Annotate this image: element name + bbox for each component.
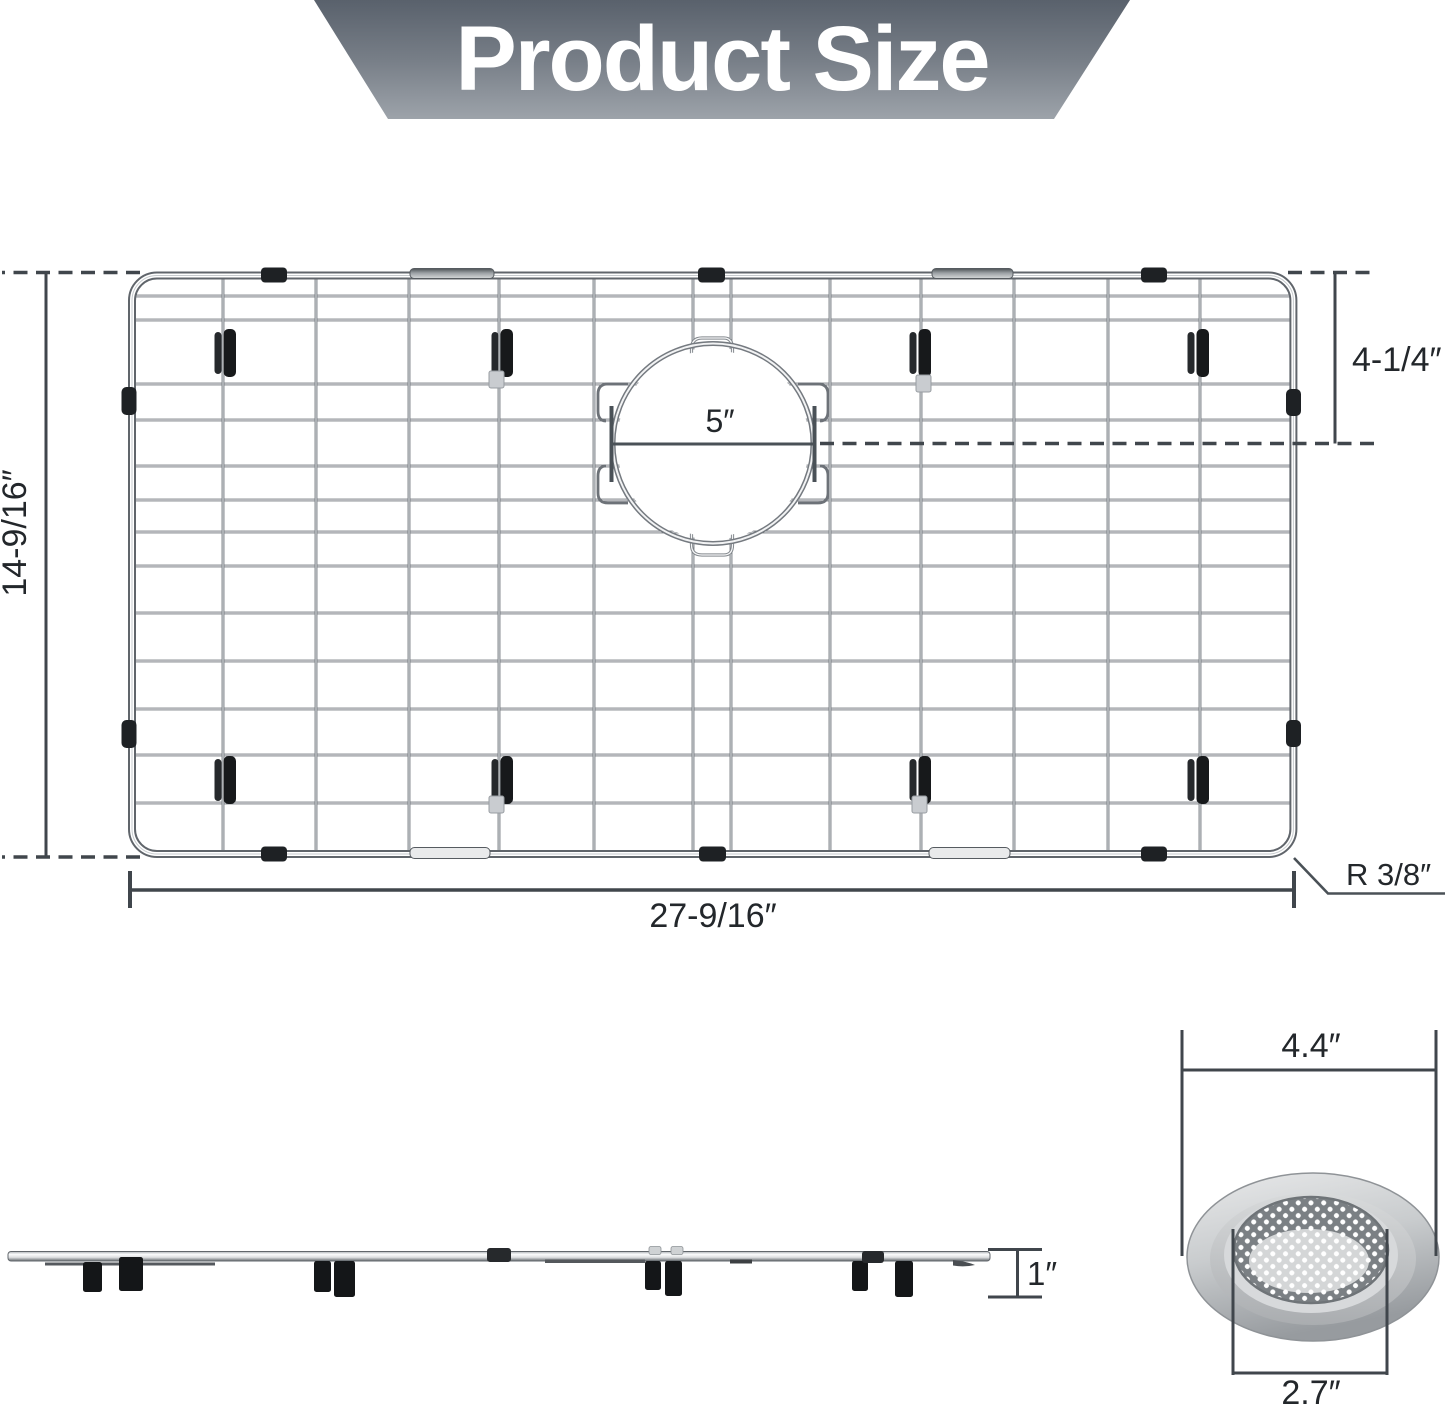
svg-text:14-9/16″: 14-9/16″	[0, 469, 34, 596]
svg-text:5″: 5″	[705, 403, 734, 439]
svg-text:R 3/8″: R 3/8″	[1346, 857, 1431, 892]
svg-text:4-1/4″: 4-1/4″	[1352, 341, 1442, 379]
svg-text:27-9/16″: 27-9/16″	[649, 897, 776, 935]
svg-text:4.4″: 4.4″	[1281, 1027, 1340, 1065]
svg-text:Product Size: Product Size	[455, 8, 988, 110]
svg-text:1″: 1″	[1027, 1255, 1057, 1292]
svg-text:2.7″: 2.7″	[1281, 1374, 1340, 1406]
